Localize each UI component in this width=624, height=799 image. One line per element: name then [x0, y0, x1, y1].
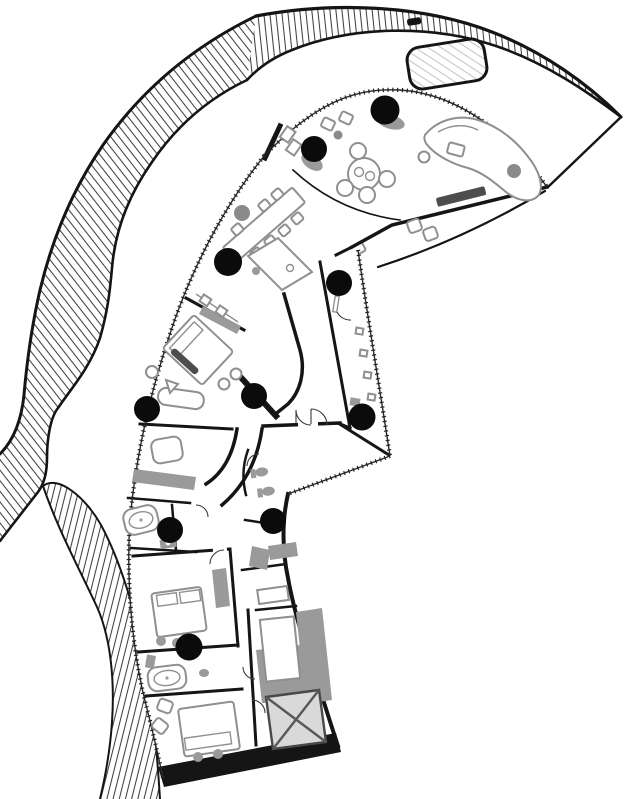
- gray-point-marker: [234, 205, 250, 221]
- terrace-edge-line: [548, 117, 621, 187]
- column-marker: [241, 383, 267, 409]
- floor-plan-svg: [0, 0, 624, 799]
- bed-3: [178, 701, 240, 756]
- ottomans: [406, 218, 438, 242]
- column-marker: [301, 136, 327, 162]
- hall-bench: [257, 586, 289, 604]
- column-marker: [371, 96, 400, 125]
- shower: [249, 546, 270, 570]
- elevator-shaft: [266, 690, 326, 749]
- column-marker: [176, 634, 203, 661]
- column-marker: [157, 517, 183, 543]
- storage-inner: [260, 616, 300, 681]
- column-marker: [214, 248, 242, 276]
- column-marker: [260, 508, 286, 534]
- floor-plan-page: [0, 0, 624, 799]
- column-marker: [134, 396, 160, 422]
- gray-point-marker: [507, 164, 521, 178]
- spa-pool: [405, 37, 489, 91]
- column-marker: [349, 404, 376, 431]
- gray-point-marker: [334, 131, 343, 140]
- column-marker: [326, 270, 352, 296]
- plant: [146, 366, 158, 378]
- coffee-table: [150, 436, 184, 465]
